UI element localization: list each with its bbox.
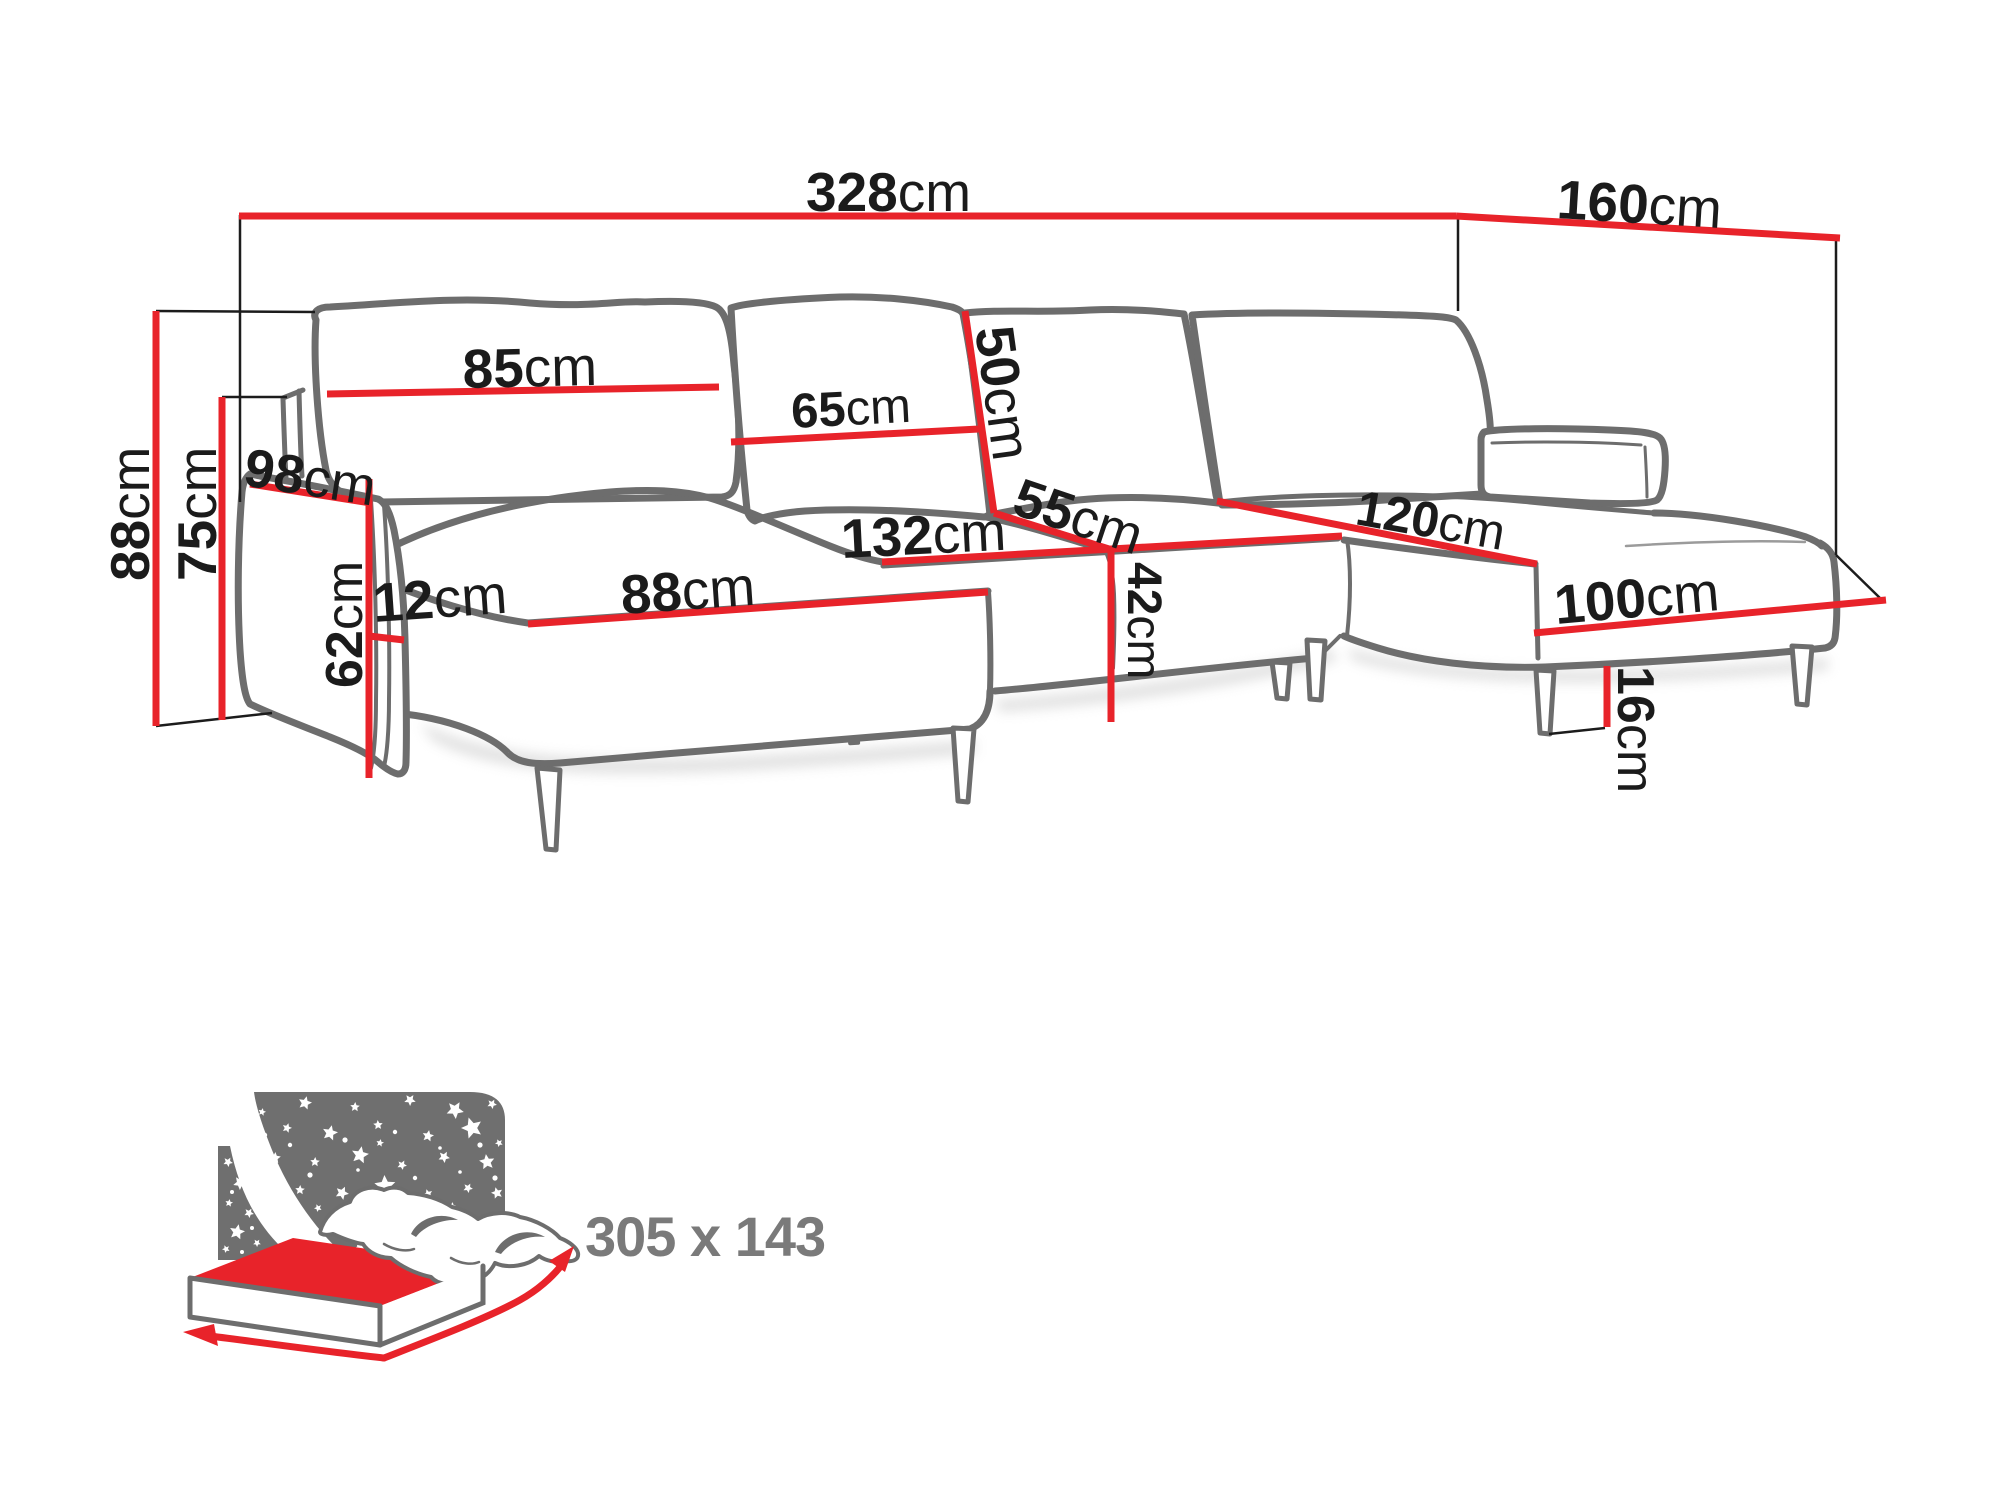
svg-text:88cm: 88cm — [619, 555, 758, 626]
svg-text:88cm: 88cm — [99, 446, 161, 581]
svg-text:305 x 143: 305 x 143 — [585, 1205, 825, 1268]
svg-text:85cm: 85cm — [462, 335, 598, 400]
svg-text:12cm: 12cm — [371, 563, 510, 634]
svg-text:65cm: 65cm — [790, 379, 913, 439]
svg-text:62cm: 62cm — [316, 561, 374, 688]
svg-text:132cm: 132cm — [839, 500, 1007, 570]
svg-text:42cm: 42cm — [1117, 562, 1170, 679]
svg-text:160cm: 160cm — [1555, 168, 1724, 240]
svg-text:328cm: 328cm — [806, 161, 971, 223]
svg-text:75cm: 75cm — [166, 446, 228, 581]
svg-text:16cm: 16cm — [1606, 666, 1664, 793]
